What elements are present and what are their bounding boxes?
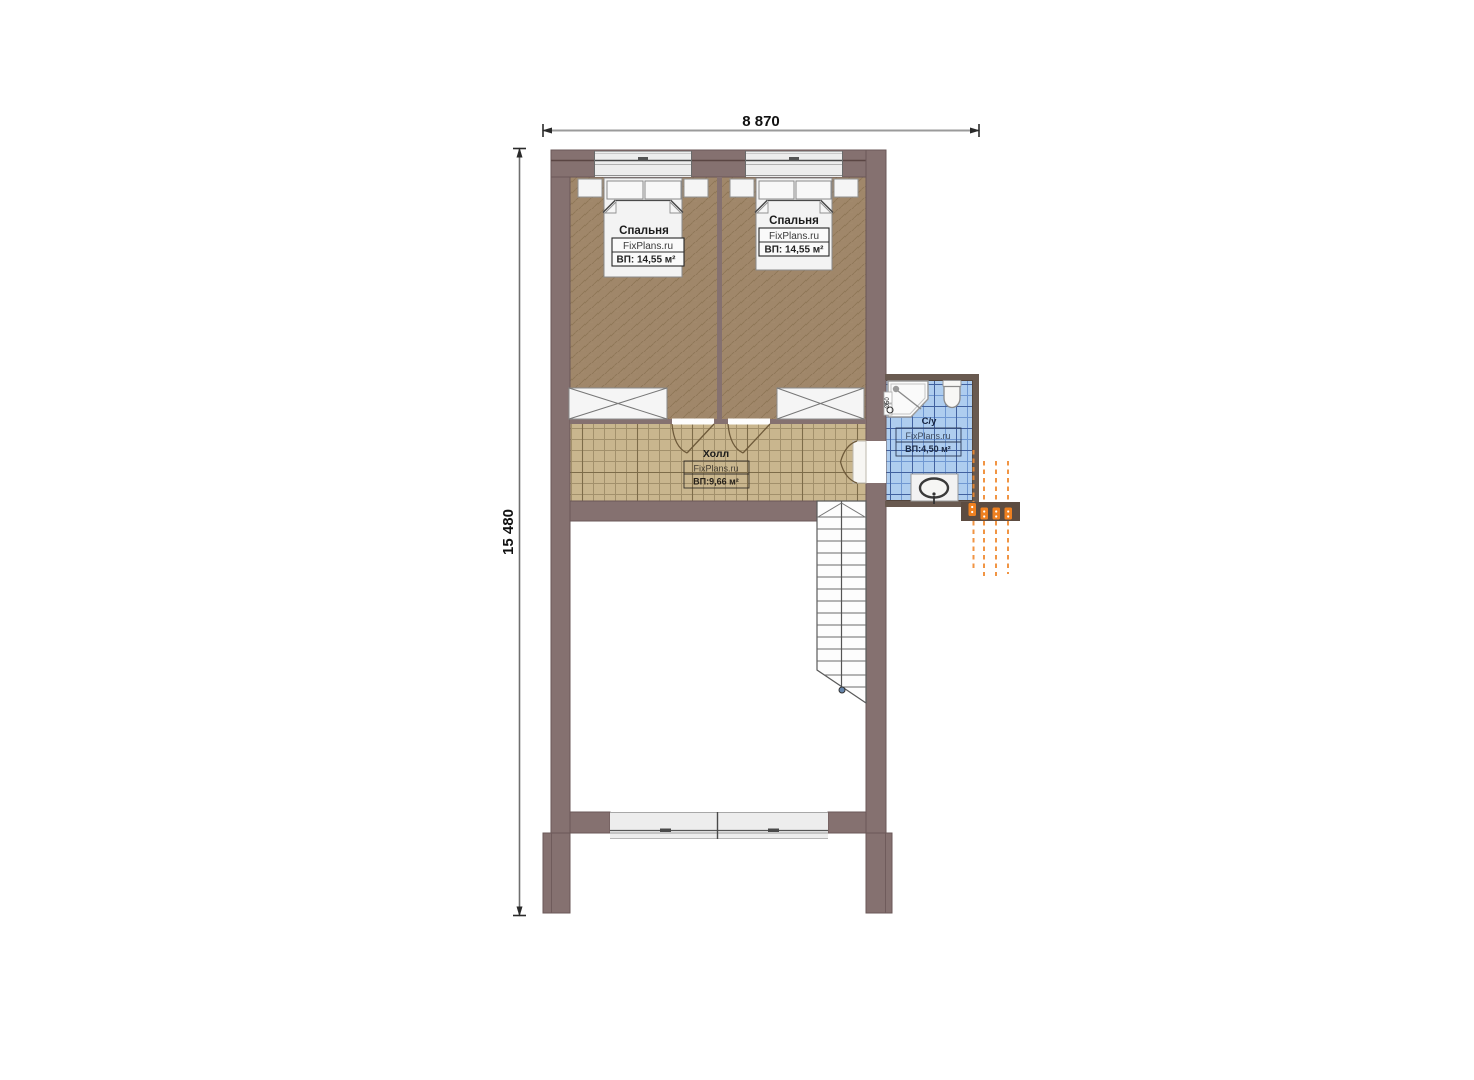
svg-text:Спальня: Спальня bbox=[769, 215, 819, 227]
svg-text:8 870: 8 870 bbox=[742, 113, 780, 130]
svg-text:Холл: Холл bbox=[703, 448, 729, 460]
svg-text:Ø50: Ø50 bbox=[885, 397, 891, 409]
svg-text:FixPlans.ru: FixPlans.ru bbox=[905, 431, 950, 441]
svg-text:ВП:9,66 м²: ВП:9,66 м² bbox=[693, 477, 739, 487]
svg-text:FixPlans.ru: FixPlans.ru bbox=[769, 231, 819, 242]
svg-text:С/у: С/у bbox=[922, 416, 938, 427]
svg-text:Спальня: Спальня bbox=[619, 225, 669, 237]
svg-text:ВП: 14,55 м²: ВП: 14,55 м² bbox=[616, 255, 676, 266]
svg-text:ВП: 14,55 м²: ВП: 14,55 м² bbox=[764, 245, 824, 256]
svg-text:15 480: 15 480 bbox=[500, 509, 517, 555]
svg-text:FixPlans.ru: FixPlans.ru bbox=[693, 464, 738, 474]
svg-text:FixPlans.ru: FixPlans.ru bbox=[623, 241, 673, 252]
svg-text:ВП:4,50 м²: ВП:4,50 м² bbox=[905, 444, 951, 454]
